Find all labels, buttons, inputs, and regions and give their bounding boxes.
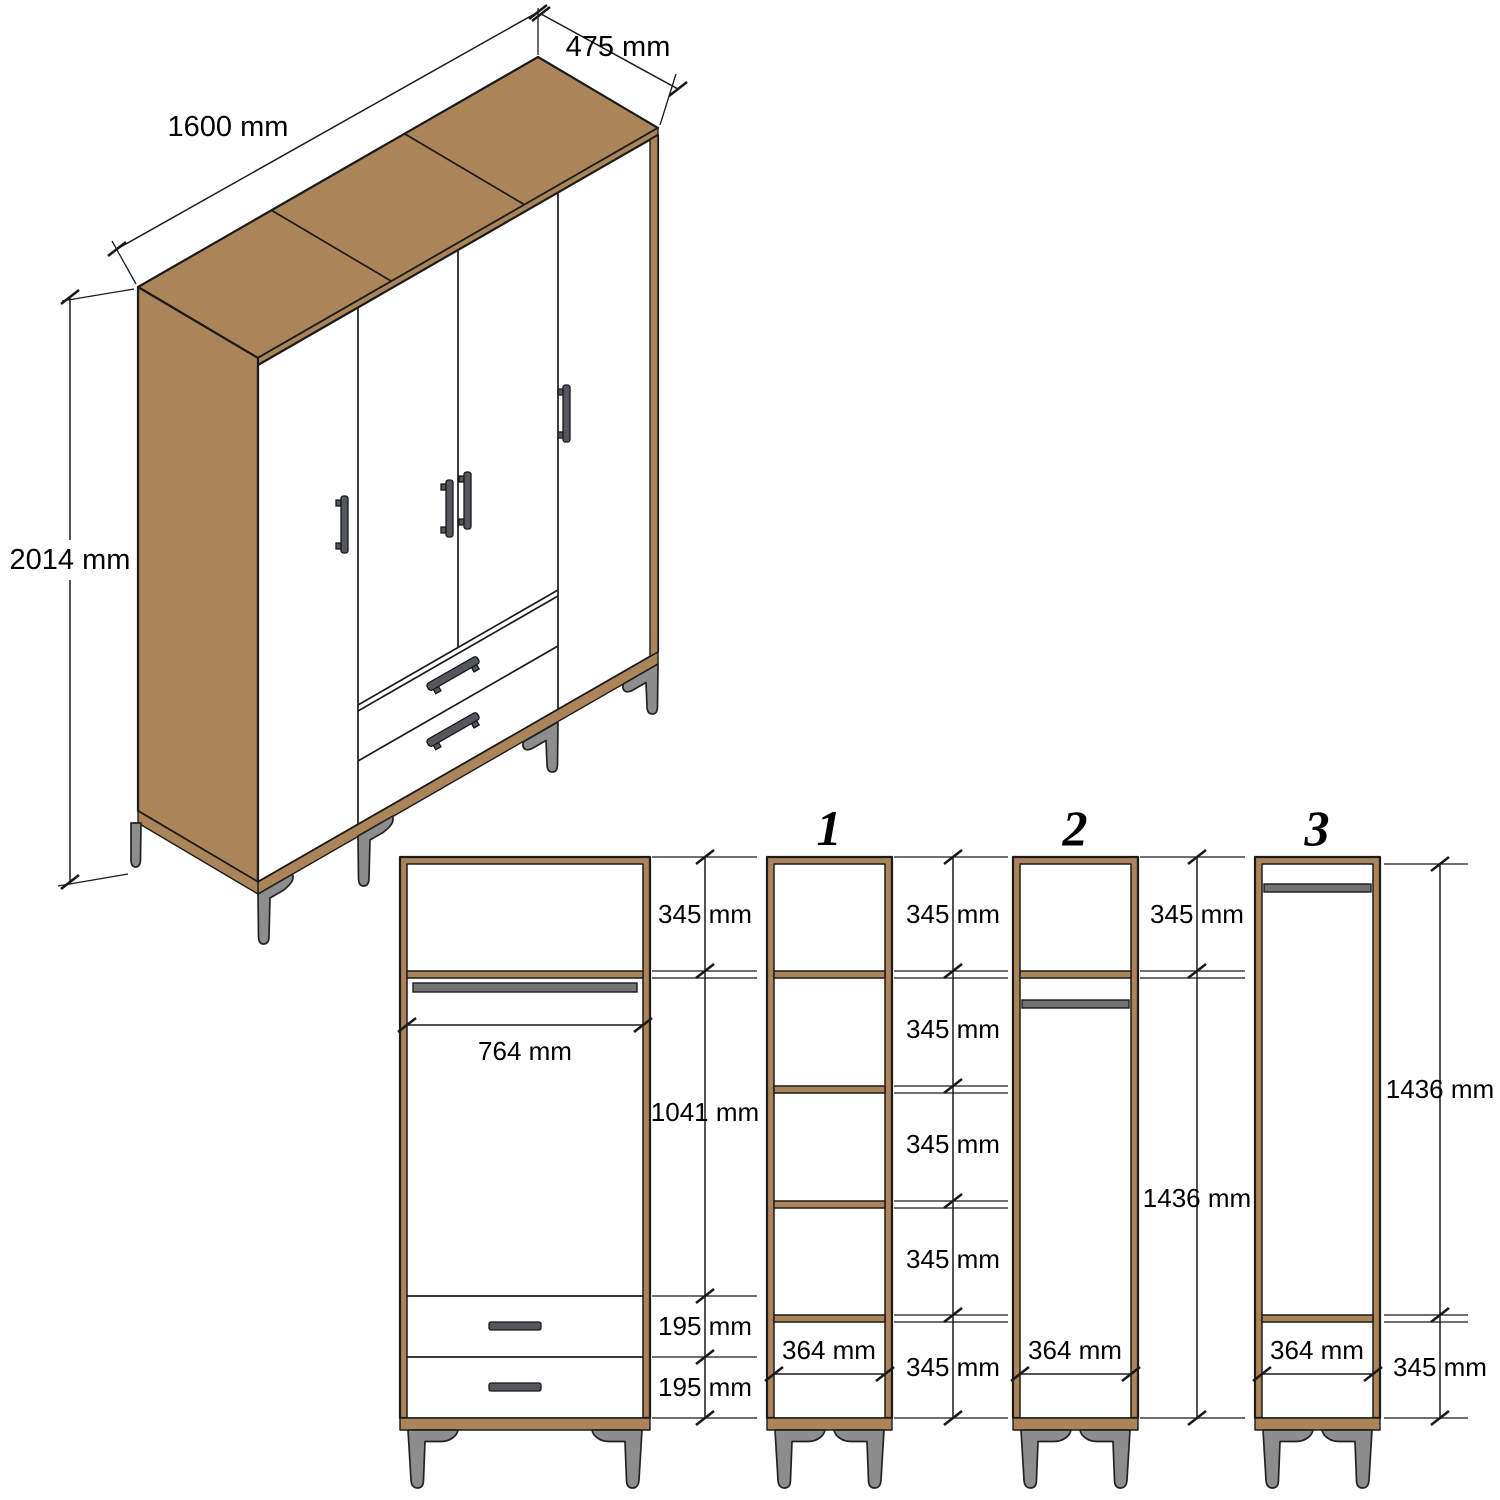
column-number: 1 (817, 800, 842, 856)
dim-label: 345 mm (1393, 1352, 1487, 1382)
isometric-view: 1600 mm 475 mm 2014 mm (8, 5, 687, 944)
metal-foot (1263, 1430, 1313, 1488)
shelf (774, 1086, 885, 1093)
front-section-view: 345 mm 1041 mm 195 mm 195 mm 764 mm (398, 850, 759, 1488)
technical-drawing-page: 1600 mm 475 mm 2014 mm (0, 0, 1500, 1500)
right-edge-strip (650, 135, 658, 657)
column-number: 3 (1304, 800, 1330, 856)
drawer-handle (489, 1322, 541, 1330)
column-view-1: 1 345 mm 345 mm (765, 800, 1008, 1488)
dimension-height-2014: 2014 mm (8, 289, 136, 889)
hanging-rail (1264, 884, 1371, 892)
inner-width-label: 764 mm (478, 1036, 572, 1066)
drawer-handle (489, 1383, 541, 1391)
dim-label: 345 mm (906, 1014, 1000, 1044)
inner-width-label: 364 mm (1028, 1335, 1122, 1365)
inner-width-label: 364 mm (1270, 1335, 1364, 1365)
shelf (1262, 1315, 1373, 1322)
dim-label: 345 mm (906, 899, 1000, 929)
shelf (774, 1201, 885, 1208)
ext-line (112, 241, 136, 284)
metal-foot (1080, 1430, 1130, 1488)
column-view-2: 2 345 mm 1436 mm 364 mm (1011, 800, 1251, 1488)
dim-label: 345 mm (906, 1352, 1000, 1382)
ext-line (660, 74, 676, 125)
width-label: 1600 mm (168, 111, 289, 143)
base-trim (767, 1418, 892, 1430)
dim-label: 345 mm (906, 1244, 1000, 1274)
dim-label: 195 mm (658, 1372, 752, 1402)
shelf (774, 1315, 885, 1322)
dim-label: 1041 mm (651, 1097, 759, 1127)
dim-label: 1436 mm (1386, 1074, 1494, 1104)
height-label: 2014 mm (10, 544, 131, 576)
metal-foot (592, 1430, 642, 1488)
metal-foot (1021, 1430, 1071, 1488)
dim-label: 345 mm (906, 1129, 1000, 1159)
base-trim (1013, 1418, 1138, 1430)
shelf (1020, 971, 1131, 978)
dim-label: 195 mm (658, 1311, 752, 1341)
column-view-3: 3 1436 mm 345 mm 364 mm (1253, 800, 1494, 1488)
dim-tick (108, 242, 126, 256)
hanging-rail (1022, 1000, 1129, 1008)
interior (407, 864, 643, 1418)
depth-label: 475 mm (566, 31, 671, 63)
inner-width-label: 364 mm (782, 1335, 876, 1365)
metal-foot (775, 1430, 825, 1488)
base-trim (1255, 1418, 1380, 1430)
hanging-rail (413, 983, 637, 992)
metal-foot (408, 1430, 458, 1488)
metal-foot (1322, 1430, 1372, 1488)
dim-label: 1436 mm (1143, 1183, 1251, 1213)
dim-label: 345 mm (658, 899, 752, 929)
metal-foot (834, 1430, 884, 1488)
wardrobe-diagram: 1600 mm 475 mm 2014 mm (0, 0, 1500, 1500)
dim-label: 345 mm (1150, 899, 1244, 929)
left-side-panel (138, 287, 258, 882)
base-trim (400, 1418, 650, 1430)
metal-foot (131, 823, 141, 867)
shelf (407, 971, 643, 978)
shelf (774, 971, 885, 978)
column-number: 2 (1062, 800, 1088, 856)
